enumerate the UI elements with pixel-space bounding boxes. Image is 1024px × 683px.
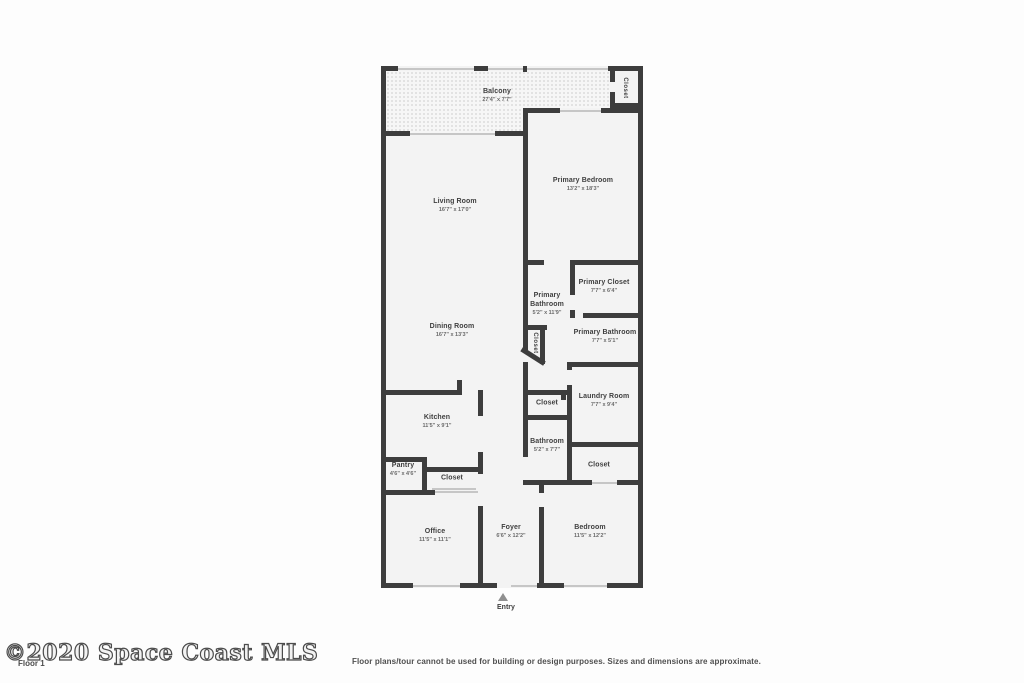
room-dimensions: 5'2" x 7'7" [530, 447, 564, 454]
window-opening-line [398, 68, 474, 70]
room-dimensions: 16'7" x 17'0" [433, 207, 477, 214]
room-label-closet-13: Closet [588, 462, 610, 471]
wall [386, 490, 435, 495]
mls-watermark: ©2020 Space Coast MLS [4, 640, 318, 666]
floorplan: Balcony27'4" x 7'7"ClosetLiving Room16'7… [381, 66, 643, 626]
wall [610, 70, 615, 82]
wall [539, 480, 544, 493]
room-name: Closet [536, 400, 558, 409]
room-dimensions: 4'6" x 4'6" [390, 471, 416, 478]
wall [607, 583, 643, 588]
room-label-bathroom-12: Bathroom5'2" x 7'7" [530, 438, 564, 454]
room-dimensions: 16'7" x 13'3" [430, 332, 475, 339]
wall [523, 420, 528, 457]
entry-arrow-icon [498, 593, 508, 601]
entry-label: Entry [497, 604, 509, 611]
room-label-closet-10: Closet [536, 400, 558, 409]
room-dimensions: 6'6" x 12'2" [496, 533, 525, 540]
wall [523, 108, 528, 328]
wall [478, 390, 483, 416]
floorplan-floor-area [381, 66, 643, 588]
room-name: Foyer [496, 524, 525, 533]
wall [539, 507, 544, 588]
room-name: Closet [441, 475, 463, 484]
room-label-primary-bathroom-5: PrimaryBathroom5'2" x 11'9" [530, 292, 564, 316]
floor-number-label: Floor 1 [18, 659, 45, 668]
wall [381, 131, 410, 136]
room-name: Kitchen [423, 414, 452, 423]
room-name: Primary Bathroom [574, 329, 637, 338]
room-dimensions: 11'5" x 12'2" [574, 533, 606, 540]
room-name: Closet [588, 462, 610, 471]
wall [567, 442, 643, 447]
wall [638, 66, 643, 588]
window-opening-line [592, 482, 617, 484]
wall [570, 260, 643, 265]
wall [478, 506, 483, 588]
room-label-living-room-2: Living Room16'7" x 17'0" [433, 198, 477, 214]
window-opening-line [560, 110, 601, 112]
room-dimensions: 11'5" x 9'1" [423, 423, 452, 430]
wall [523, 480, 592, 485]
wall [523, 260, 544, 265]
room-name: Primary Closet [579, 279, 630, 288]
wall [567, 362, 643, 367]
room-dimensions: 5'2" x 11'9" [530, 309, 564, 316]
room-label-primary-closet-6: Primary Closet7'7" x 6'4" [579, 279, 630, 295]
wall [567, 385, 572, 485]
room-dimensions: 7'7" x 5'1" [574, 338, 637, 345]
room-label-kitchen-11: Kitchen11'5" x 9'1" [423, 414, 452, 430]
room-name: Dining Room [430, 323, 475, 332]
room-label-closet-15: Closet [441, 475, 463, 484]
room-label-office-16: Office11'5" x 11'1" [419, 528, 451, 544]
window-opening-line [413, 585, 460, 587]
room-name: Bathroom [530, 301, 564, 310]
room-name: Closet [530, 332, 538, 353]
room-dimensions: 7'7" x 9'4" [579, 402, 630, 409]
room-label-closet-7: Closet [530, 332, 538, 353]
wall [570, 265, 575, 295]
room-label-closet-1: Closet [620, 77, 628, 98]
window-opening-line [511, 585, 537, 587]
wall [427, 467, 478, 472]
room-label-primary-bedroom-3: Primary Bedroom13'2" x 18'3" [553, 177, 613, 193]
wall [561, 390, 566, 400]
room-name: Pantry [390, 462, 416, 471]
room-name: Living Room [433, 198, 477, 207]
room-name: Closet [620, 77, 628, 98]
room-dimensions: 27'4" x 7'7" [482, 97, 511, 104]
wall [422, 457, 427, 494]
wall [523, 415, 567, 420]
room-label-pantry-14: Pantry4'6" x 4'6" [390, 462, 416, 478]
wall [523, 362, 528, 390]
window-opening-line [432, 488, 476, 490]
room-label-bedroom-18: Bedroom11'5" x 12'2" [574, 524, 606, 540]
room-label-laundry-room-9: Laundry Room7'7" x 9'4" [579, 393, 630, 409]
room-name: Laundry Room [579, 393, 630, 402]
room-label-balcony-0: Balcony27'4" x 7'7" [482, 88, 511, 104]
room-label-dining-room-4: Dining Room16'7" x 13'3" [430, 323, 475, 339]
room-name: Bathroom [530, 438, 564, 447]
room-name: Balcony [482, 88, 511, 97]
wall [457, 380, 462, 395]
wall [610, 92, 615, 108]
wall [474, 66, 488, 71]
window-opening-line [488, 68, 523, 70]
balcony-texture [386, 108, 523, 133]
wall [460, 583, 497, 588]
window-opening-line [435, 491, 478, 493]
wall [523, 108, 560, 113]
room-name: Office [419, 528, 451, 537]
room-name: Bedroom [574, 524, 606, 533]
window-opening-line [564, 585, 607, 587]
entry-marker: Entry [497, 593, 509, 611]
wall [537, 583, 564, 588]
room-label-primary-bathroom-8: Primary Bathroom7'7" x 5'1" [574, 329, 637, 345]
room-dimensions: 13'2" x 18'3" [553, 186, 613, 193]
room-name: Primary [530, 292, 564, 301]
wall [583, 313, 643, 318]
room-dimensions: 11'5" x 11'1" [419, 537, 451, 544]
window-opening-line [410, 133, 495, 135]
disclaimer-text: Floor plans/tour cannot be used for buil… [352, 657, 761, 666]
room-dimensions: 7'7" x 6'4" [579, 288, 630, 295]
wall [601, 108, 643, 113]
room-label-foyer-17: Foyer6'6" x 12'2" [496, 524, 525, 540]
room-name: Primary Bedroom [553, 177, 613, 186]
wall [386, 390, 458, 395]
wall [617, 480, 643, 485]
wall [523, 390, 528, 420]
wall [381, 583, 413, 588]
wall [381, 66, 386, 588]
wall [478, 452, 483, 474]
wall [570, 313, 574, 318]
window-opening-line [527, 68, 608, 70]
